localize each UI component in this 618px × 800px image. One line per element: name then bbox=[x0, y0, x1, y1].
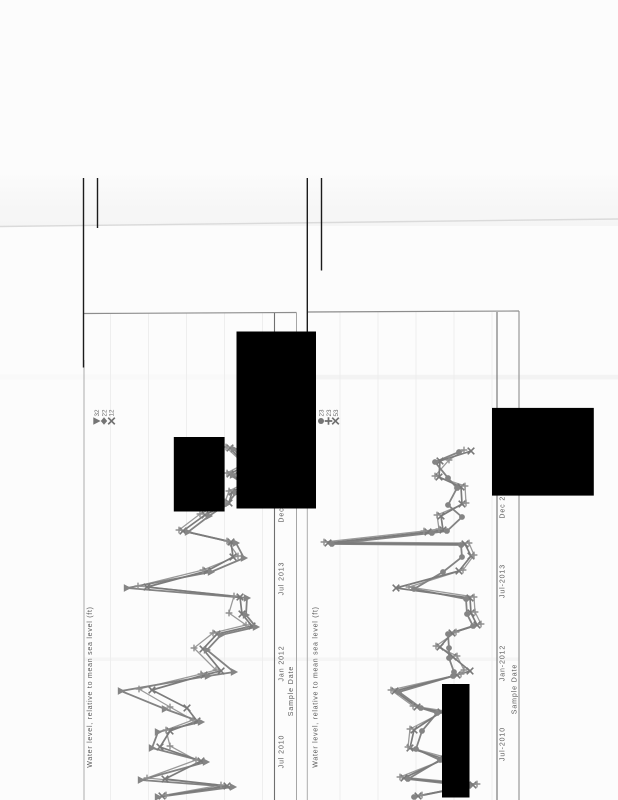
svg-text:Jul 2013: Jul 2013 bbox=[279, 562, 286, 596]
svg-text:23: 23 bbox=[319, 409, 326, 417]
svg-text:Jul-2010: Jul-2010 bbox=[500, 727, 507, 761]
svg-text:Jan 2012: Jan 2012 bbox=[279, 645, 286, 681]
svg-text:32: 32 bbox=[94, 409, 101, 417]
svg-text:12: 12 bbox=[109, 409, 116, 417]
svg-text:22: 22 bbox=[102, 409, 109, 417]
svg-text:Sample Date: Sample Date bbox=[512, 664, 519, 714]
svg-text:Jul-2013: Jul-2013 bbox=[500, 564, 507, 598]
svg-text:53: 53 bbox=[333, 409, 340, 417]
svg-text:Water level, relative to mean: Water level, relative to mean sea level … bbox=[87, 606, 94, 768]
svg-text:Jan-2012: Jan-2012 bbox=[500, 645, 507, 681]
svg-text:23: 23 bbox=[326, 409, 333, 417]
svg-text:Water level, relative to mean: Water level, relative to mean sea level … bbox=[313, 606, 320, 768]
svg-text:Sample Date: Sample Date bbox=[288, 666, 295, 716]
svg-text:Jul 2010: Jul 2010 bbox=[279, 735, 286, 769]
